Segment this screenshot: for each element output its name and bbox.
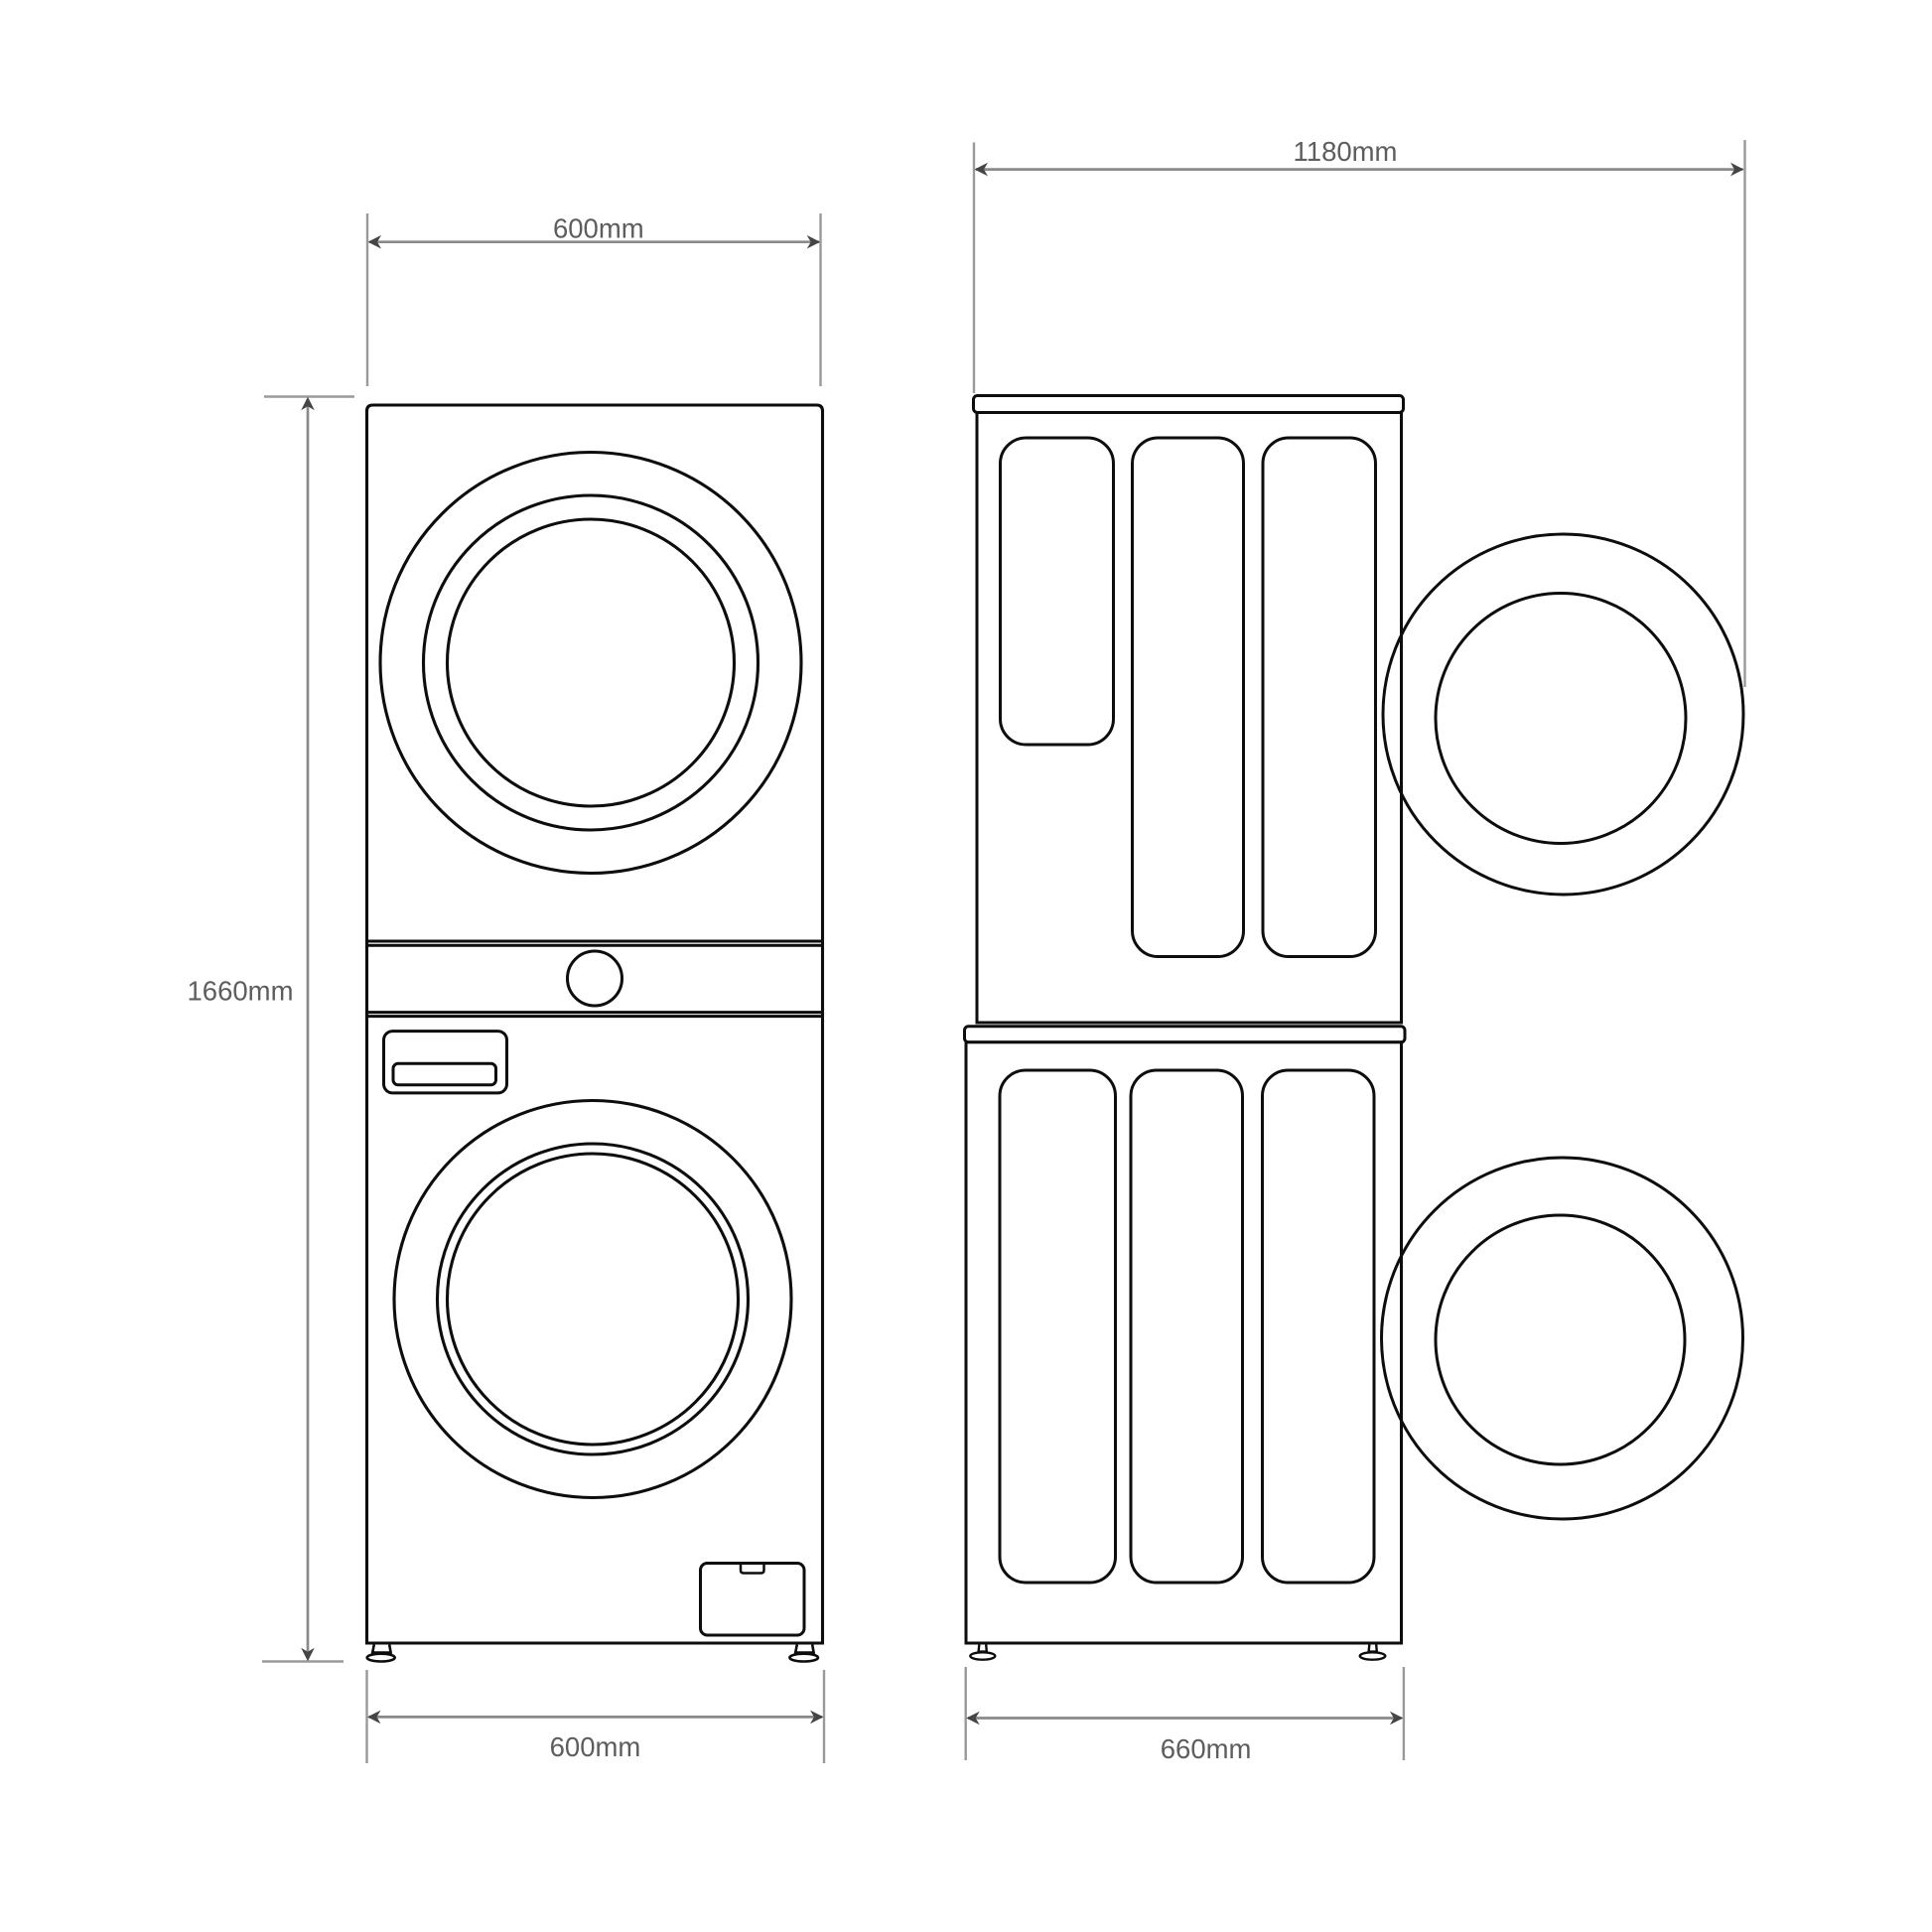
svg-text:1660mm: 1660mm	[188, 976, 294, 1007]
svg-text:600mm: 600mm	[553, 213, 644, 244]
svg-text:660mm: 660mm	[1161, 1733, 1252, 1764]
svg-text:1180mm: 1180mm	[1294, 136, 1398, 167]
svg-text:600mm: 600mm	[550, 1731, 641, 1762]
